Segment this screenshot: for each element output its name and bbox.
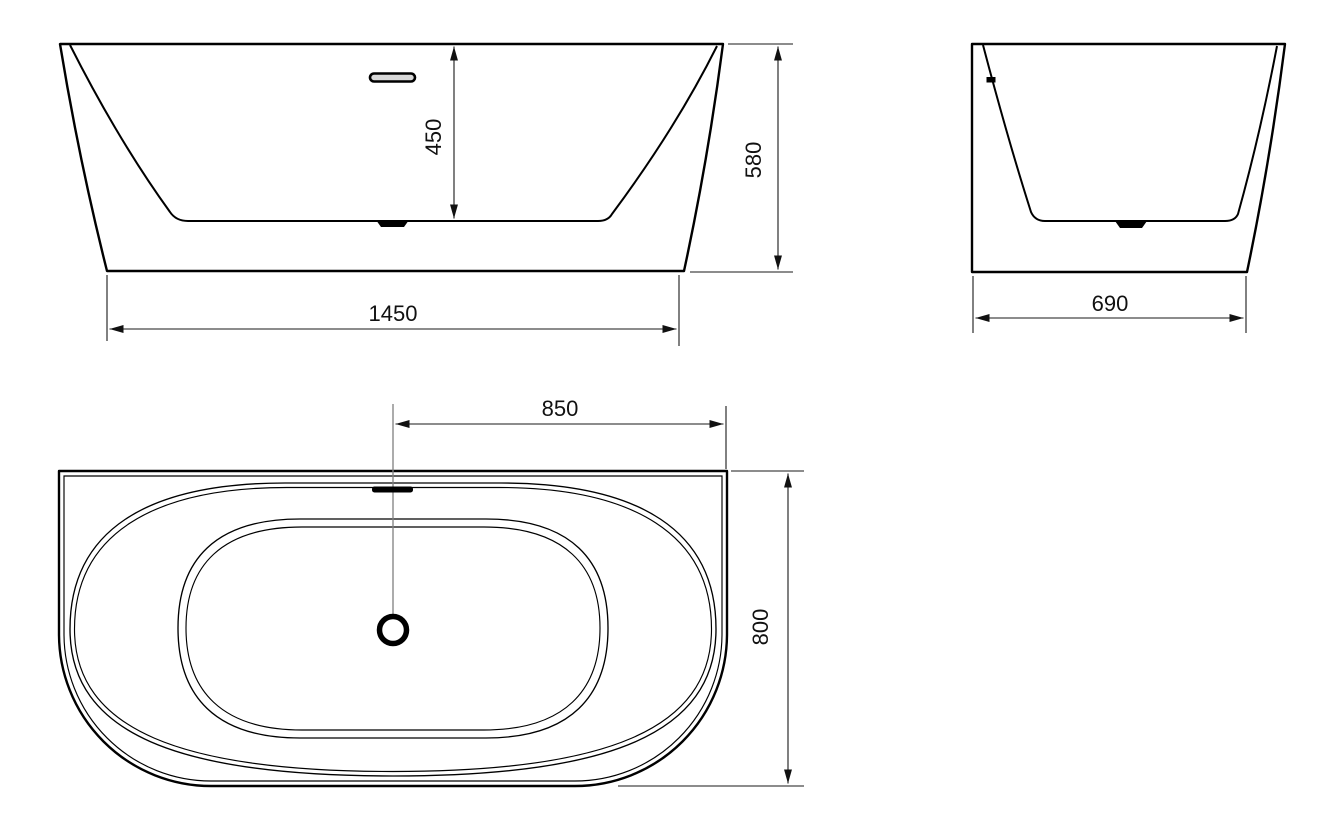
dimension-label-1450: 1450 (369, 301, 418, 326)
overflow-side-icon (987, 77, 996, 83)
side-outer-profile (972, 44, 1285, 272)
technical-drawing-page: 450 580 1450 690 (0, 0, 1322, 835)
dimension-label-800: 800 (748, 609, 773, 646)
overflow-plan-icon (372, 487, 413, 493)
dimension-label-850: 850 (542, 396, 579, 421)
dimension-label-450: 450 (421, 119, 446, 156)
dimension-690: 690 (973, 276, 1246, 333)
top-view: 850 800 (59, 396, 804, 786)
dimension-label-690: 690 (1092, 291, 1129, 316)
dimension-850: 850 (396, 396, 727, 469)
dimension-1450: 1450 (107, 275, 679, 346)
dimension-label-580: 580 (741, 142, 766, 179)
drain-recess-side-icon (1115, 221, 1147, 228)
side-inner-bowl (983, 45, 1277, 221)
front-view: 450 580 1450 (60, 44, 793, 346)
drain-circle-icon (380, 617, 407, 644)
front-inner-bowl (70, 45, 717, 221)
drain-recess-icon (376, 220, 409, 227)
side-view: 690 (972, 44, 1285, 333)
dimension-450: 450 (421, 47, 454, 219)
bathtub-drawing-svg: 450 580 1450 690 (0, 0, 1322, 835)
overflow-slot-icon (370, 74, 415, 82)
